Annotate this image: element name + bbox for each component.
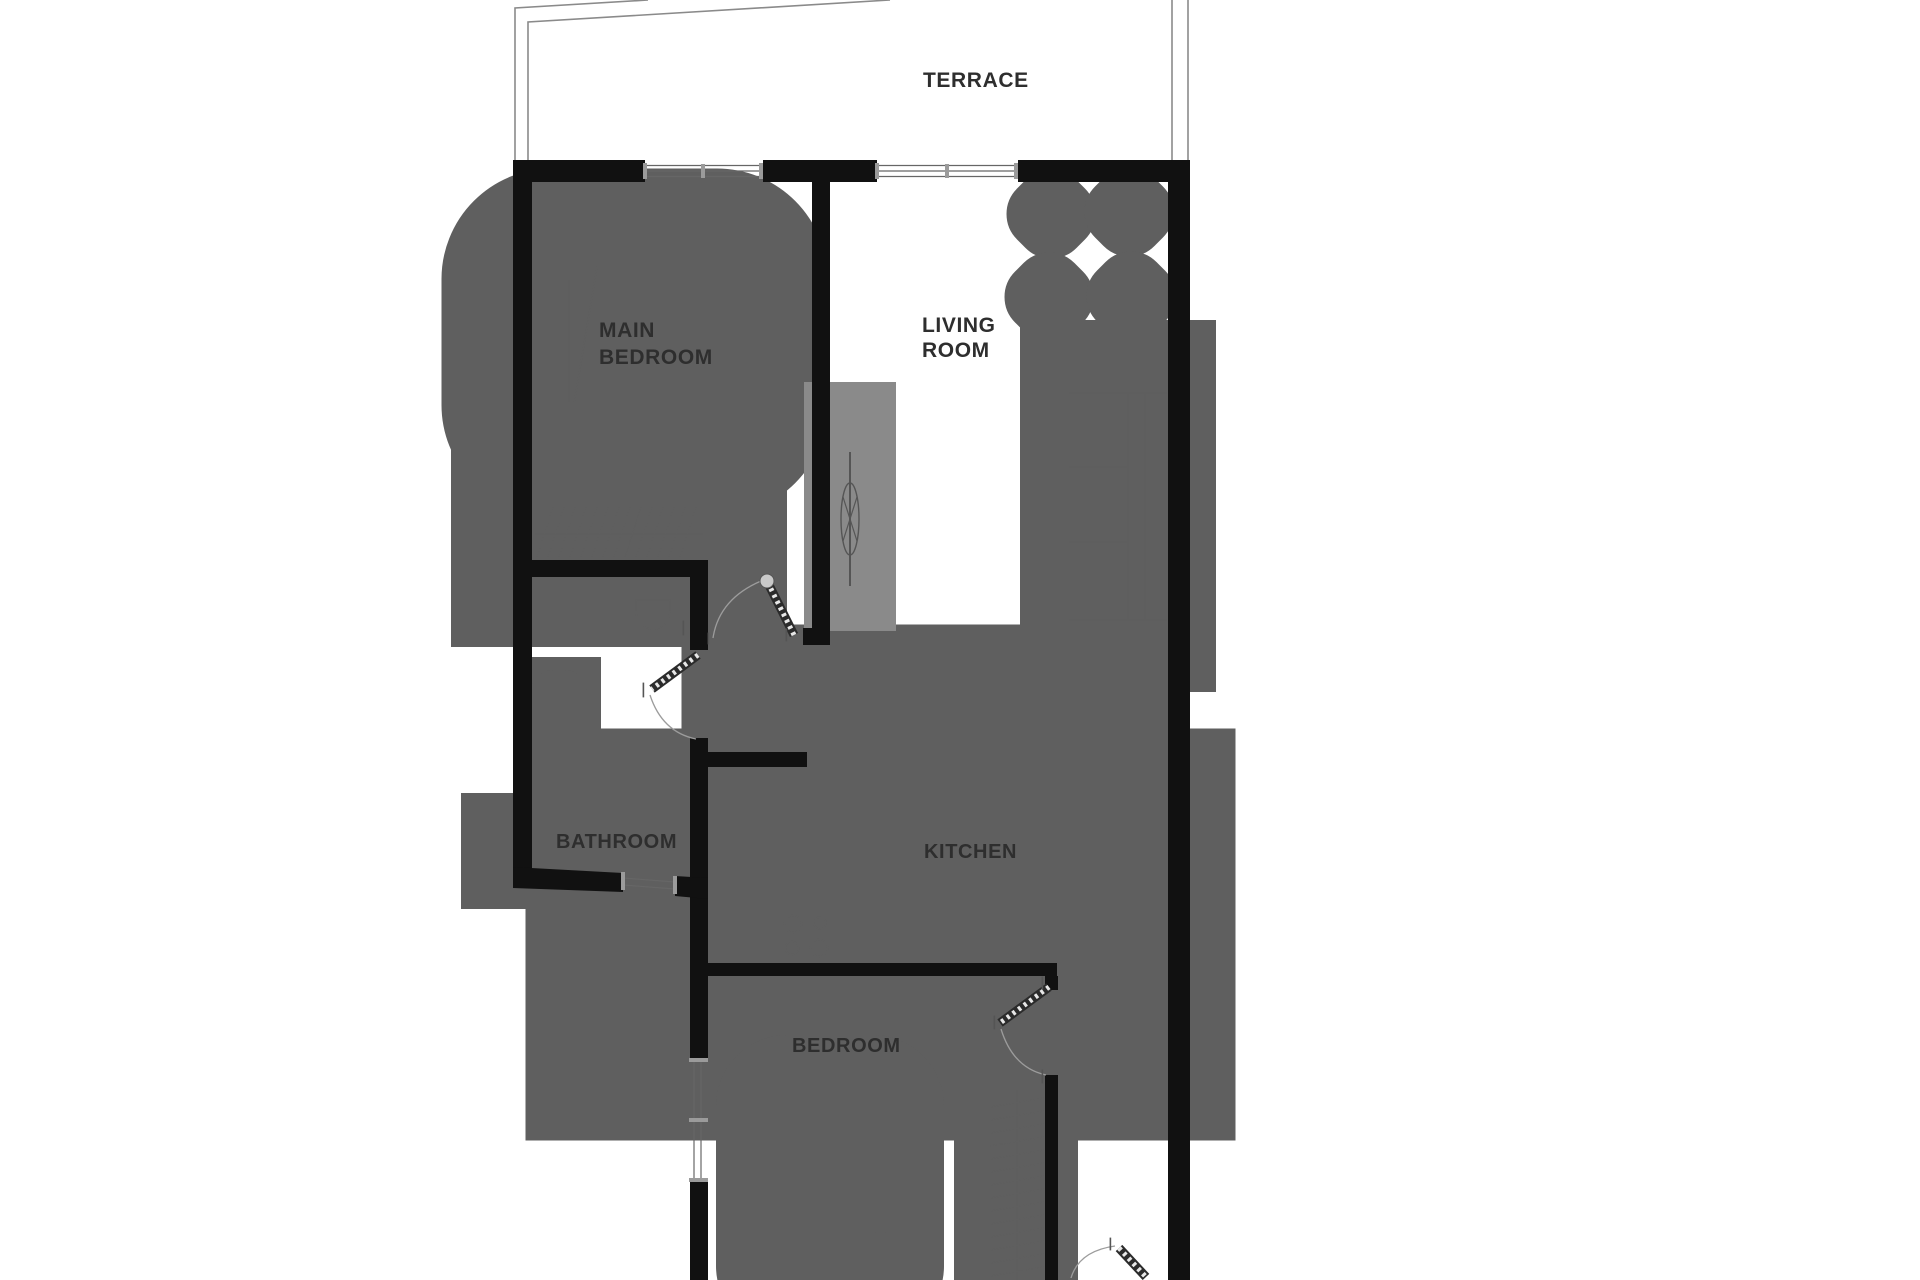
label-living-room-line1: LIVING (922, 314, 996, 337)
window-bedroom-tick-b (689, 1178, 708, 1182)
door-jamb-bathroom-2 (708, 633, 709, 644)
label-terrace: TERRACE (923, 69, 1029, 92)
wall-top-right (1018, 160, 1172, 182)
wall-bedroom-right (1045, 1075, 1058, 1280)
wall-kitchen-bottom (690, 963, 1057, 976)
window-terrace-1-tick-r (759, 163, 763, 179)
dining-chair-2 (1099, 182, 1158, 241)
terrace-edge-inner (528, 0, 890, 160)
door-edge-bathroom (643, 683, 644, 697)
wall-divider-living (812, 182, 830, 628)
wall-bedroom-left-lower (690, 1180, 708, 1280)
wall-left (513, 182, 532, 873)
door-jamb-main-bedroom (786, 629, 787, 641)
terrace-edge-outer (515, 0, 648, 160)
door-hinge-entrance (1110, 1238, 1111, 1250)
label-kitchen: KITCHEN (924, 841, 1017, 863)
wall-mainbedroom-bottom (513, 560, 708, 577)
toilet-cistern (633, 578, 673, 598)
wall-top-left (513, 160, 645, 182)
label-living-room-line2: ROOM (922, 339, 990, 362)
wall-divider-endcap (803, 628, 830, 645)
sofa (1069, 369, 1167, 643)
nightstand-2-right (889, 1253, 923, 1280)
dining-chair-4 (1101, 266, 1160, 325)
wall-top-mid (763, 160, 877, 182)
label-bathroom: BATHROOM (556, 831, 677, 853)
window-bathroom-tick-l (621, 872, 625, 890)
door-leaf-entrance (1119, 1248, 1146, 1277)
wall-kitchen-top (703, 752, 807, 767)
dining-chair-3 (1019, 267, 1078, 326)
main-bed (538, 265, 731, 419)
label-bedroom: BEDROOM (792, 1035, 901, 1057)
window-terrace-2-tick-m (945, 164, 949, 178)
dining-chair-1 (1021, 184, 1080, 243)
bed-2 (773, 1092, 887, 1280)
kitchen-sink (941, 910, 991, 956)
window-bedroom-tick-m (689, 1118, 708, 1122)
floorplan-page: TERRACEMAINBEDROOMLIVINGROOMBATHROOMKITC… (0, 0, 1920, 1280)
wall-bathroom-bottom-b (675, 876, 708, 899)
window-terrace-1-tick-m (701, 164, 705, 178)
wall-kitchen-left (690, 738, 708, 1060)
window-bathroom-tick-r (673, 876, 677, 894)
window-bedroom-tick-t (689, 1058, 708, 1062)
label-main-bedroom-line2: BEDROOM (599, 346, 713, 369)
floorplan-svg: TERRACEMAINBEDROOMLIVINGROOMBATHROOMKITC… (0, 0, 1920, 1280)
door-edge-bedroom (994, 1016, 995, 1029)
window-terrace-1-tick-l (643, 163, 647, 179)
door-jamb-bedroom-2 (1042, 1070, 1043, 1083)
door-jamb-bathroom-1 (683, 621, 684, 635)
window-terrace-2-tick-r (1014, 163, 1018, 179)
wall-bathroom-right-upper (690, 577, 708, 650)
tv-unit-foot-2 (857, 607, 858, 614)
nightstand-main-top (536, 224, 571, 262)
closet-2 (985, 1090, 1047, 1280)
nightstand-2-left (737, 1253, 772, 1280)
label-main-bedroom-line1: MAIN (599, 319, 655, 342)
wall-right (1168, 160, 1190, 1280)
window-terrace-2-tick-l (875, 163, 879, 179)
door-knob-main-bedroom (760, 574, 774, 588)
tv-unit-foot-1 (843, 607, 844, 614)
door-jamb-bedroom-1 (1042, 977, 1043, 989)
